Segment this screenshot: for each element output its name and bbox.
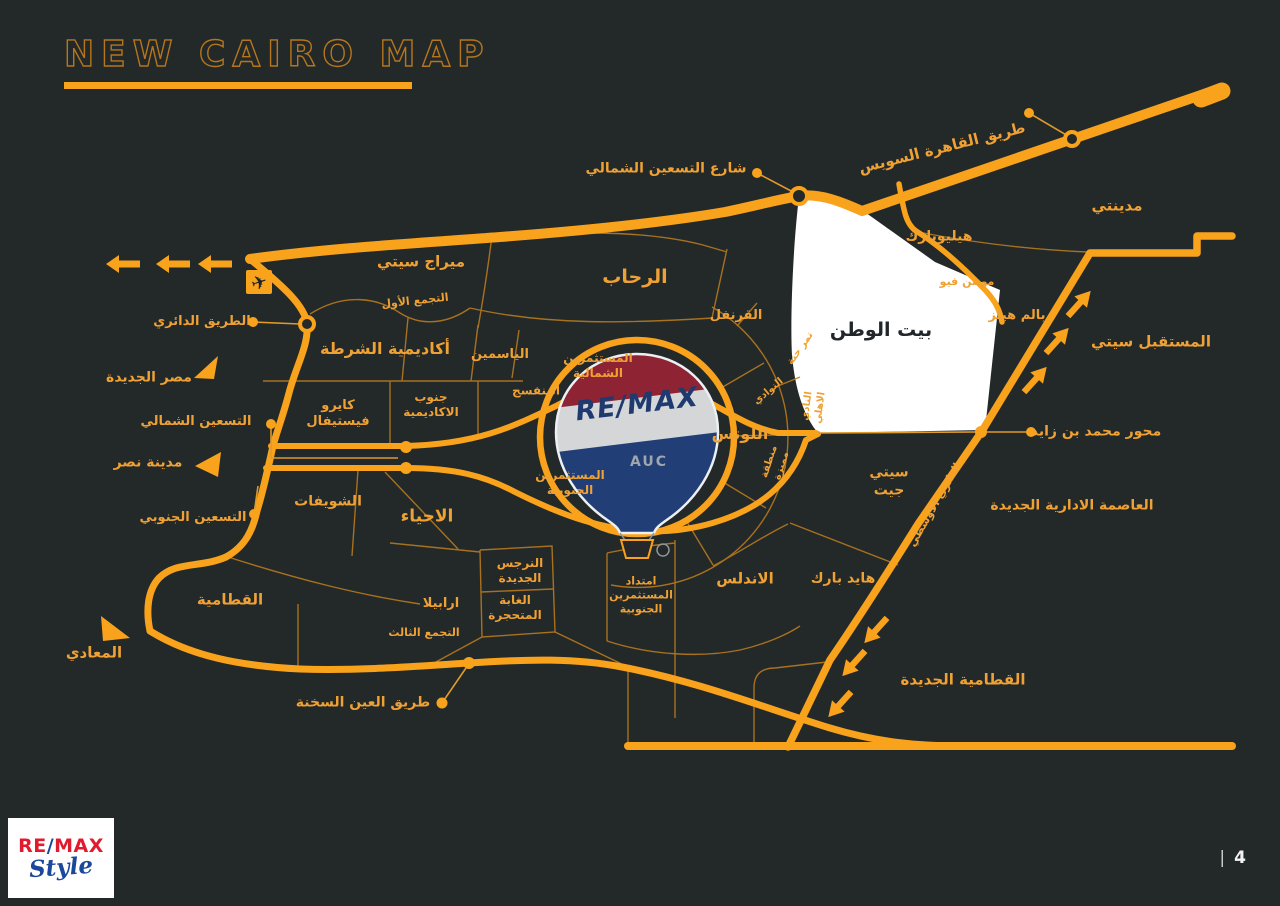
label-investors-south: المستثمرين الجنوبية — [526, 468, 614, 498]
page-number-separator: | — [1219, 848, 1225, 868]
label-south-academy: جنوب الاكاديمية — [389, 390, 474, 420]
label-yasmin: الياسمين — [471, 347, 529, 363]
label-banafseg: البنفسج — [512, 384, 560, 399]
label-heliopark: هيليوبارك — [905, 228, 972, 246]
nasr-city-pointer-icon — [195, 452, 221, 477]
new-cairo-map-page: ✈ RE/MAX AUC NEW CAIRO MAP ميراج سيتي ال… — [0, 0, 1280, 906]
west-arrow-icon — [106, 255, 140, 273]
label-new-narges: النرجس الجديدة — [488, 556, 552, 586]
label-investors-north: المستثمرين الشمالية — [552, 351, 644, 381]
heliopolis-pointer-icon — [194, 356, 218, 379]
label-mirage-city: ميراج سيتي — [377, 253, 465, 272]
suez-road-endcap — [1201, 91, 1222, 99]
label-hyde-park: هايد بارك — [811, 570, 876, 588]
label-heliopolis: مصر الجديدة — [106, 369, 192, 387]
label-north90: التسعين الشمالي — [141, 414, 252, 430]
map-canvas: ✈ RE/MAX AUC — [0, 0, 1280, 906]
label-police-academy: أكاديمية الشرطة — [320, 339, 450, 359]
title-underline — [64, 82, 412, 89]
southwest-arrow-icon — [858, 612, 893, 649]
label-andalus: الاندلس — [716, 570, 773, 589]
page-number: | 4 — [1219, 848, 1246, 868]
label-south90: التسعين الجنوبي — [140, 510, 247, 526]
label-mostakbal-city: المستقبل سيتي — [1091, 333, 1211, 352]
logo-style-word: Style — [28, 852, 94, 883]
west-arrow-icon — [198, 255, 232, 273]
label-new-capital: العاصمة الادارية الجديدة — [990, 497, 1153, 515]
registered-mark-icon — [657, 544, 669, 556]
airport-icon: ✈ — [246, 270, 272, 296]
label-north90-street: شارع التسعين الشمالي — [586, 160, 747, 178]
remax-style-logo: RE/MAX Style — [8, 818, 114, 898]
label-qoronfol: القرنفل — [710, 308, 763, 324]
label-investors-south-ext: امتداد المستثمرين الجنوبية — [597, 574, 685, 615]
label-maadi: المعادي — [66, 644, 122, 663]
page-title: NEW CAIRO MAP — [64, 34, 491, 75]
label-sokhna-road: طريق العين السخنة — [296, 694, 430, 712]
label-city-gate: سيتي جيت — [860, 465, 918, 500]
balloon-campus-text: AUC — [630, 454, 668, 470]
label-new-katameya: القطامية الجديدة — [901, 671, 1026, 690]
label-mountain-view: مونتن فيو — [940, 275, 995, 289]
southwest-arrow-icon — [836, 645, 871, 682]
label-third-settlement: التجمع الثالث — [388, 626, 459, 640]
west-arrow-icon — [156, 255, 190, 273]
label-ring-road: الطريق الدائري — [153, 314, 250, 330]
label-lotus: اللوتس — [712, 424, 769, 444]
southwest-arrow-icon — [822, 686, 857, 723]
label-ahyaa: الاحياء — [401, 506, 454, 527]
label-mbz-axis: محور محمد بن زايد — [1031, 423, 1162, 441]
label-rehab: الرحاب — [602, 266, 667, 290]
label-katameya: القطامية — [197, 591, 263, 610]
label-palm-hills: بالم هيلز — [988, 308, 1045, 324]
label-petrified-forest: الغابة المتحجرة — [483, 593, 547, 623]
label-madinaty: مدينتي — [1091, 197, 1142, 216]
label-cairo-festival: كايرو فيستيفال — [298, 398, 378, 431]
page-number-value: 4 — [1234, 848, 1246, 868]
label-shouyfat: الشويفات — [294, 493, 362, 511]
label-arabella: ارابيلا — [423, 596, 459, 612]
label-nasr-city: مدينة نصر — [114, 454, 183, 472]
balloon-basket — [621, 540, 653, 558]
label-beit-el-watan: بيت الوطن — [830, 319, 932, 343]
maadi-pointer-icon — [101, 616, 130, 641]
